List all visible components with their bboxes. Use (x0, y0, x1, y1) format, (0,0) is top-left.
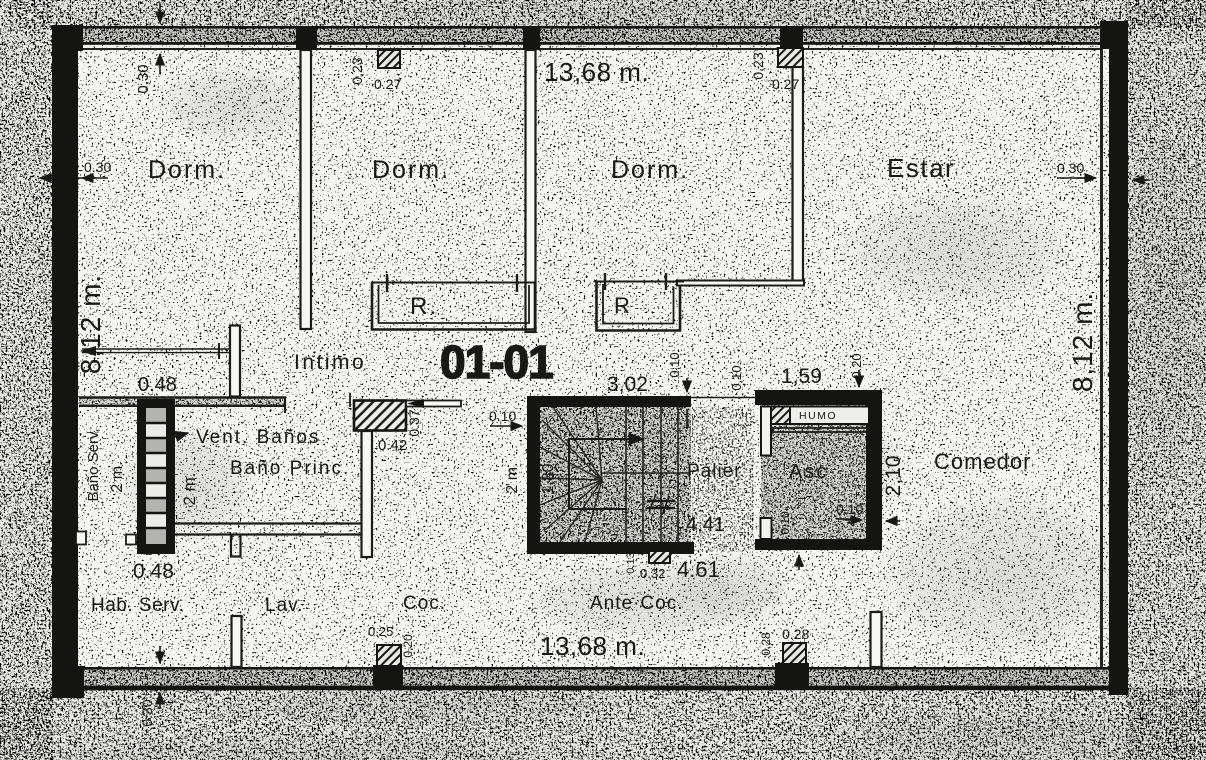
svg-text:R.: R. (410, 293, 438, 320)
svg-text:4.61: 4.61 (677, 557, 720, 582)
svg-text:Dorm.: Dorm. (372, 156, 450, 184)
svg-text:Comedor: Comedor (934, 449, 1031, 474)
svg-text:0.10: 0.10 (836, 501, 863, 517)
svg-text:0.30: 0.30 (1057, 160, 1084, 176)
svg-text:0,23: 0,23 (349, 57, 365, 84)
svg-text:Lav.: Lav. (265, 595, 304, 616)
svg-text:0.30: 0.30 (84, 159, 111, 175)
svg-text:Baño Princ.: Baño Princ. (230, 458, 350, 479)
svg-text:0,10: 0,10 (667, 352, 682, 377)
svg-text:2 m.: 2 m. (180, 472, 199, 505)
svg-text:13,68 m.: 13,68 m. (544, 57, 649, 87)
svg-text:01-01: 01-01 (440, 336, 553, 388)
svg-text:Intimo: Intimo (294, 351, 366, 374)
svg-text:Asc: Asc (789, 461, 828, 483)
svg-text:2 m.: 2 m. (504, 462, 521, 493)
svg-text:0.20: 0.20 (401, 634, 415, 658)
svg-text:0.27: 0.27 (772, 76, 799, 92)
svg-text:Ante·Coc.: Ante·Coc. (590, 593, 683, 614)
svg-text:0,23: 0,23 (750, 52, 766, 79)
svg-text:0,30: 0,30 (135, 64, 152, 93)
svg-text:Baño Serv.: Baño Serv. (85, 428, 102, 501)
svg-text:Coc.: Coc. (403, 593, 446, 614)
svg-text:2 m.: 2 m. (109, 461, 126, 492)
svg-text:0.48: 0.48 (133, 560, 174, 583)
svg-text:0.32: 0.32 (640, 566, 665, 581)
svg-text:Hab. Serv.: Hab. Serv. (91, 595, 184, 616)
svg-text:0.48: 0.48 (138, 374, 177, 396)
svg-text:Estar: Estar (887, 153, 955, 183)
svg-text:0,10: 0,10 (778, 511, 792, 535)
svg-text:13,68 m.: 13,68 m. (540, 631, 645, 661)
svg-text:0.27: 0.27 (374, 76, 401, 92)
svg-text:1,80: 1,80 (540, 463, 557, 494)
svg-text:0.28: 0.28 (782, 626, 809, 642)
svg-text:4,41: 4,41 (686, 514, 725, 536)
svg-text:0.20: 0.20 (849, 353, 864, 378)
svg-text:0.37: 0.37 (406, 409, 422, 436)
svg-text:2,10: 2,10 (882, 456, 905, 497)
svg-text:0.30: 0.30 (139, 699, 155, 726)
svg-text:3,02: 3,02 (607, 373, 648, 396)
svg-text:0,10: 0,10 (729, 365, 744, 390)
svg-text:8,12 m.: 8,12 m. (1067, 292, 1098, 392)
svg-text:Palier: Palier (687, 461, 742, 482)
svg-text:Dorm.: Dorm. (611, 156, 689, 184)
svg-text:HUMO: HUMO (799, 410, 837, 422)
svg-text:Vent. Baños: Vent. Baños (196, 427, 320, 448)
svg-text:0.25: 0.25 (368, 624, 393, 639)
svg-text:0.13: 0.13 (625, 552, 637, 573)
svg-text:0.42: 0.42 (378, 437, 407, 454)
svg-text:R: R (614, 293, 630, 318)
svg-text:1,59: 1,59 (781, 365, 822, 388)
svg-text:0,28: 0,28 (759, 632, 773, 656)
svg-text:Dorm.: Dorm. (148, 156, 226, 184)
svg-text:8,12 m.: 8,12 m. (75, 274, 106, 374)
svg-text:0.10: 0.10 (489, 408, 516, 424)
